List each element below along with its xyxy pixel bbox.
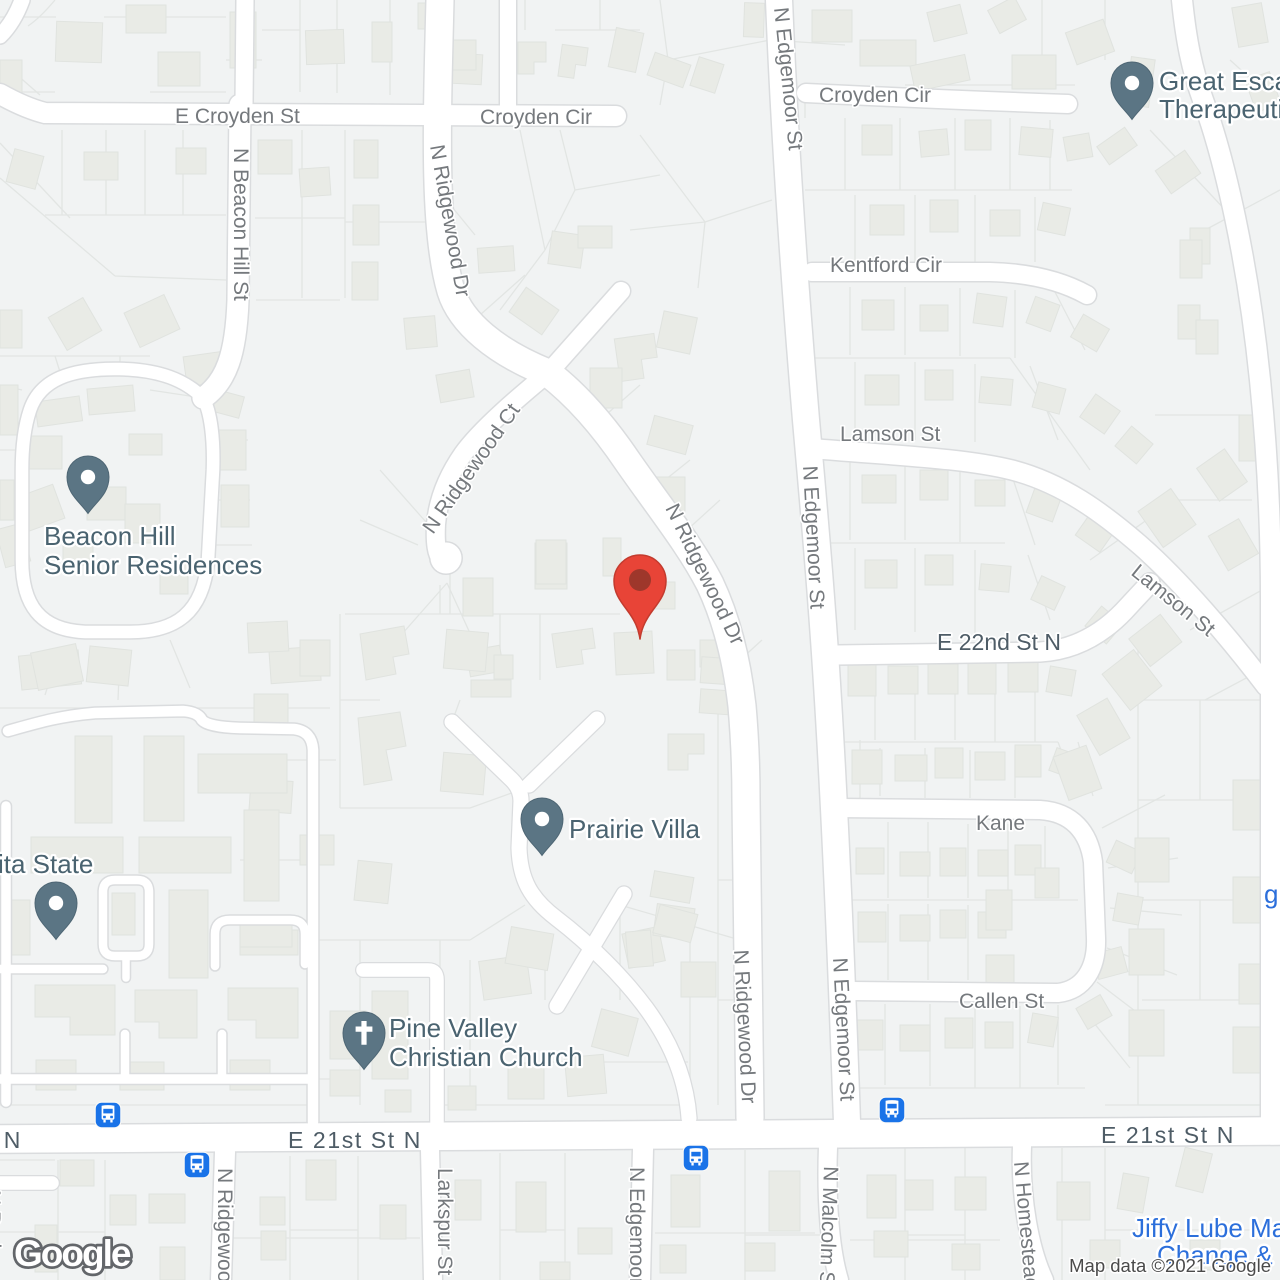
svg-text:E 21st St N: E 21st St N [288, 1127, 422, 1153]
svg-text:N Beacon Hill St: N Beacon Hill St [229, 148, 252, 301]
svg-text:N Malcolm St: N Malcolm St [815, 1166, 842, 1280]
svg-text:E 22nd St N: E 22nd St N [937, 629, 1061, 655]
svg-text:ita State: ita State [0, 849, 93, 879]
svg-text:Map data ©2021 Google: Map data ©2021 Google [1069, 1255, 1271, 1276]
svg-text:N Edgemoor: N Edgemoor [625, 1167, 648, 1280]
svg-text:Larkspur St: Larkspur St [433, 1168, 456, 1276]
svg-text:E Croyden St: E Croyden St [175, 105, 300, 128]
svg-text:Pine Valley: Pine Valley [389, 1013, 517, 1043]
svg-text:Kentford Cir: Kentford Cir [830, 254, 942, 277]
svg-text:Beacon Hill: Beacon Hill [44, 521, 176, 551]
svg-text:Lamson St: Lamson St [840, 423, 941, 446]
svg-text:Great Escap: Great Escap [1159, 66, 1280, 96]
svg-text:E 21st St N: E 21st St N [0, 1127, 22, 1153]
svg-text:Therapeuti: Therapeuti [1159, 94, 1280, 124]
svg-text:g: g [1264, 879, 1278, 909]
svg-text:Christian Church: Christian Church [389, 1042, 583, 1072]
svg-text:N Parkwood: N Parkwood [0, 1190, 4, 1280]
svg-text:Callen St: Callen St [959, 990, 1044, 1013]
svg-text:Google: Google [14, 1233, 131, 1274]
svg-text:E 21st St N: E 21st St N [1101, 1122, 1235, 1148]
svg-text:N Ridgewood: N Ridgewood [213, 1168, 236, 1280]
svg-text:Prairie Villa: Prairie Villa [569, 814, 701, 844]
svg-text:Senior Residences: Senior Residences [44, 550, 262, 580]
svg-text:Kane: Kane [976, 812, 1025, 835]
svg-text:Croyden Cir: Croyden Cir [480, 106, 592, 129]
svg-text:Croyden Cir: Croyden Cir [819, 84, 931, 107]
svg-text:Jiffy Lube Ma: Jiffy Lube Ma [1132, 1213, 1280, 1243]
